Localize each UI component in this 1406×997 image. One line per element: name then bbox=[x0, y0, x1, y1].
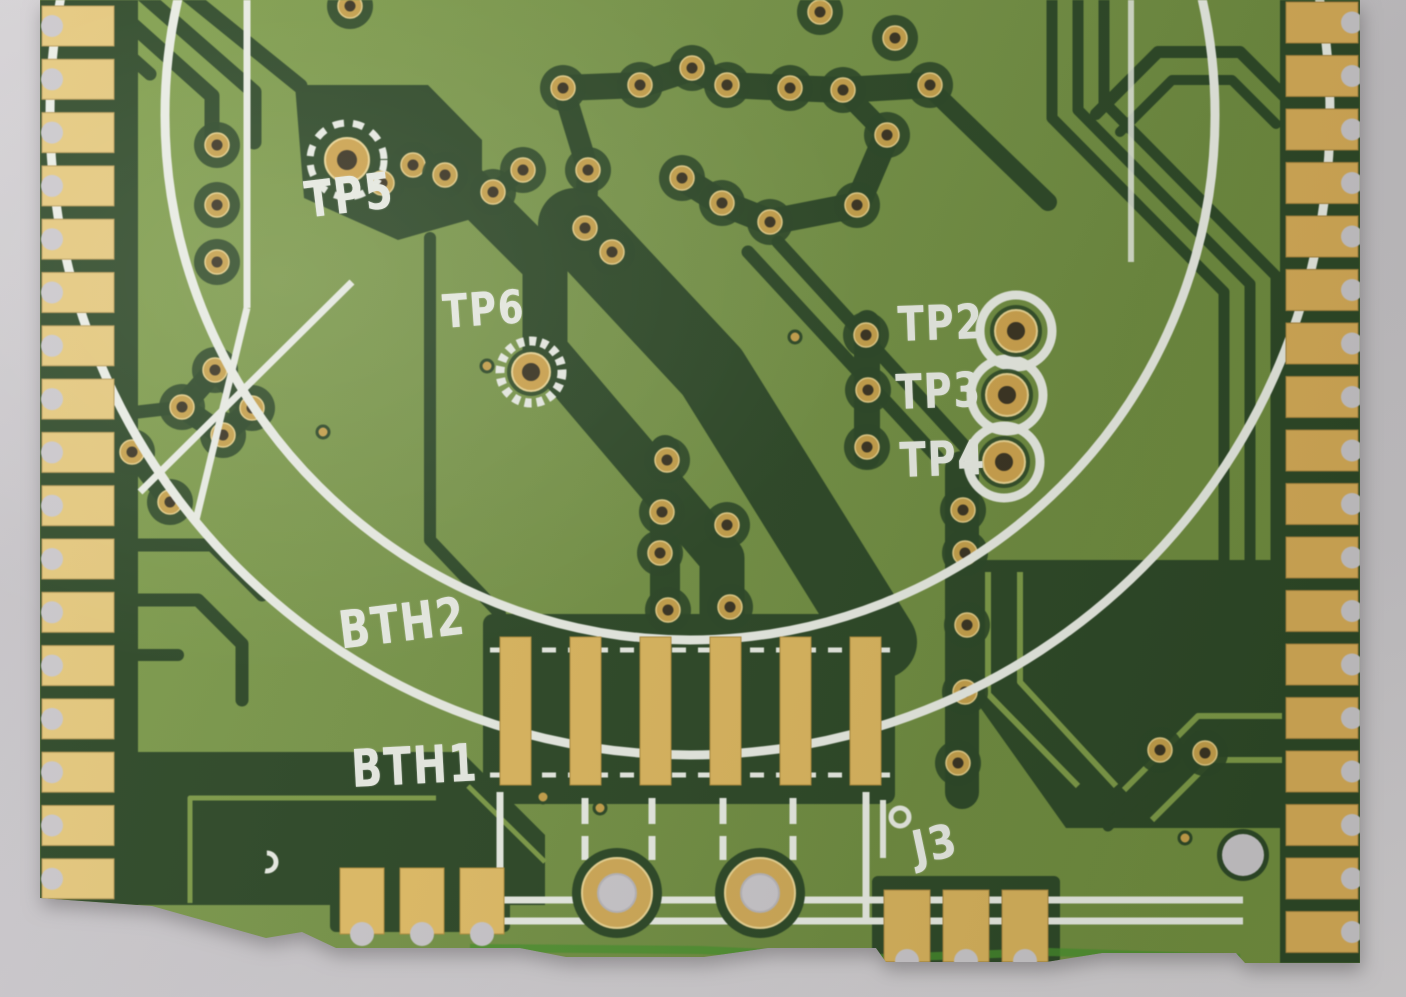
photo-background: TP5 TP6 TP2 TP3 TP4 BTH2 BTH1 J3 bbox=[0, 0, 1406, 997]
silkscreen-label-bth2: BTH2 bbox=[336, 591, 468, 658]
silkscreen-label-tp5: TP5 bbox=[302, 165, 397, 226]
routed-board-edge bbox=[470, 948, 1240, 958]
silkscreen-label-tp2: TP2 bbox=[897, 298, 984, 349]
silkscreen-label-bth1: BTH1 bbox=[350, 737, 480, 796]
pin1-marker-ring bbox=[891, 808, 909, 826]
pcb-board-wrap bbox=[0, 0, 1406, 997]
silkscreen-label-tp3: TP3 bbox=[895, 366, 982, 417]
pcb-art bbox=[40, 0, 1360, 965]
left-castellated-pads bbox=[41, 6, 114, 899]
pcb-board bbox=[40, 0, 1360, 965]
silkscreen-label-tp6: TP6 bbox=[441, 283, 526, 335]
silkscreen-label-tp4: TP4 bbox=[899, 434, 986, 485]
silkscreen-label-j3: J3 bbox=[908, 817, 962, 871]
